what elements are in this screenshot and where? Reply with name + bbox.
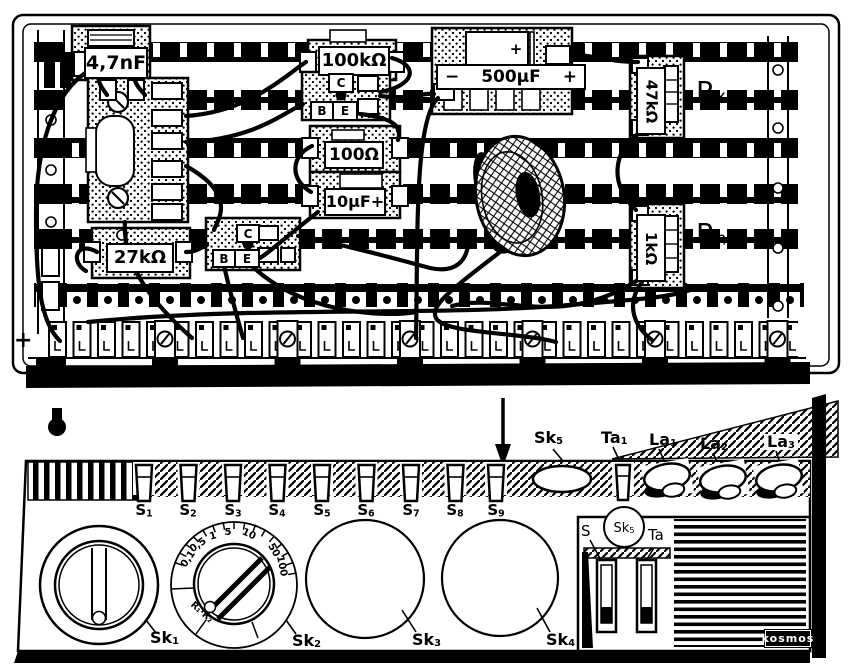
knob-label-sk4: Sk4 (546, 632, 575, 648)
knob-label-sk3: Sk3 (412, 632, 441, 648)
cap-500uf-body-plus: + (508, 40, 524, 58)
transistor2-b-label: B (212, 249, 236, 268)
side-stud (48, 408, 66, 436)
rn-label: Rn (696, 220, 726, 248)
res-1k-label: 1kΩ (636, 214, 666, 282)
transistor1-e-label: E (332, 101, 358, 121)
module-relay (86, 78, 188, 222)
callout-sk5: Sk5 (534, 430, 563, 446)
switch-label-s6: S6 (352, 503, 380, 518)
callout-la1: La1 (649, 432, 677, 448)
switch-label-s2: S2 (174, 503, 202, 518)
right-edge-shadow (812, 394, 826, 658)
transistor1-b-label: B (310, 101, 334, 121)
ta1-button (612, 462, 634, 500)
cap-47nf-label: 4,7nF (84, 47, 148, 79)
transistor1-c-label: C (328, 73, 354, 93)
cap-500uf-plus: + (563, 67, 577, 87)
switch-label-s8: S8 (441, 503, 469, 518)
knob-label-sk1: Sk1 (150, 630, 179, 646)
switch-label-s4: S4 (263, 503, 291, 518)
callout-la3: La3 (764, 434, 798, 450)
board-front-edge (26, 362, 810, 388)
res-100-label: 100Ω (324, 141, 384, 169)
res-47k-label: 47kΩ (636, 67, 666, 135)
kosmos-logo: kosmos (764, 629, 812, 648)
inset-s-label: S (581, 524, 591, 539)
transistor2-c-label: C (236, 224, 260, 243)
switch-levers (133, 462, 507, 501)
switch-label-s5: S5 (308, 503, 336, 518)
callout-la2: La2 (700, 436, 728, 452)
switch-label-s9: S9 (482, 503, 510, 518)
down-arrow-icon (495, 398, 511, 467)
knob-sk4 (442, 520, 558, 636)
cap-500uf-minus: − (445, 67, 459, 87)
front-panel-base (14, 651, 810, 663)
dial-value-5: 5 (217, 526, 239, 538)
left-vent-grille (28, 462, 137, 500)
cap-10uf-label: 10µF+ (324, 188, 386, 216)
kit-diagram: 4,7nF 100kΩ C B E + − 500µF + 100Ω 10µF+… (0, 0, 849, 672)
switch-label-s7: S7 (397, 503, 425, 518)
switch-label-s3: S3 (219, 503, 247, 518)
knob-sk1 (40, 526, 158, 644)
speaker-grille (674, 519, 806, 647)
callout-ta1: Ta1 (601, 430, 628, 446)
cap-500uf-label: − 500µF + (436, 64, 586, 90)
inset-sk5-label: Sk5 (610, 519, 638, 537)
res-27k-label: 27kΩ (106, 243, 174, 273)
rx-label: Rx (696, 78, 726, 106)
sk5-slide-slot (533, 466, 591, 492)
knob-sk3 (306, 520, 424, 638)
knob-sk2 (171, 521, 297, 648)
res-100k-label: 100kΩ (318, 46, 390, 76)
switch-label-s1: S1 (130, 503, 158, 518)
inset-ta-label: Ta (648, 528, 664, 543)
knob-label-sk2: Sk2 (292, 633, 321, 649)
terminal-plus-label: + (14, 330, 32, 352)
transistor2-e-label: E (234, 249, 260, 268)
